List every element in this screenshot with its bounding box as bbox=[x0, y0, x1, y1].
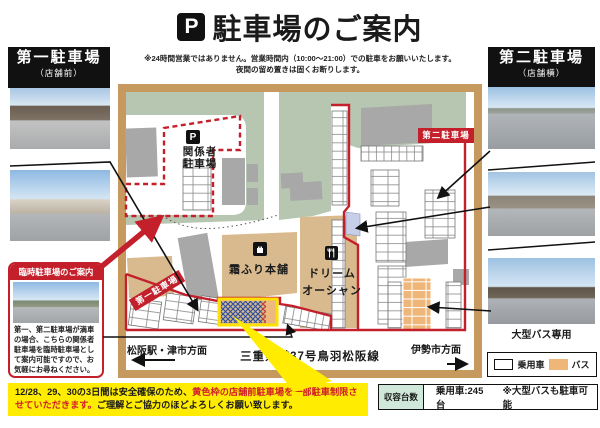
legend-box: 乗用車 バス bbox=[487, 352, 597, 377]
temporary-parking-text: 第一、第二駐車場が満車の場合、こちらの関係者駐車場を臨時駐車場として案内可能です… bbox=[10, 323, 102, 377]
notice-part1: 12/28、29、30の3日間は安全確保のため、 bbox=[15, 387, 192, 397]
photo-temporary-lot bbox=[13, 282, 99, 323]
store2-line1: ドリーム bbox=[296, 266, 368, 283]
bracket-line-right1 bbox=[488, 162, 595, 170]
parking-icon: P bbox=[177, 13, 205, 41]
staff-parking-line2: 駐車場 bbox=[172, 158, 228, 170]
lot1-header-sub: （店舗前） bbox=[8, 67, 110, 79]
legend-car-label: 乗用車 bbox=[517, 358, 544, 371]
direction-right-label: 伊勢市方面 bbox=[400, 341, 472, 356]
temporary-parking-header: 臨時駐車場のご案内 bbox=[10, 264, 102, 280]
lot2-header-sub: （店舗横） bbox=[488, 67, 595, 79]
lot2-map-label: 第二駐車場 bbox=[418, 128, 474, 143]
photo-lot1-storefront bbox=[10, 88, 110, 149]
lot1-header: 第一駐車場 （店舗前） bbox=[8, 47, 110, 88]
parking-guide-poster: P 駐車場のご案内 ※24時間営業ではありません。営業時間内（10:00～21:… bbox=[0, 0, 600, 428]
photo-bus-area bbox=[488, 258, 595, 324]
capacity-note: ※大型バスも駐車可能 bbox=[503, 383, 597, 411]
bus-parking-grid bbox=[403, 278, 431, 330]
lavender-building bbox=[346, 212, 360, 236]
lot2-header: 第二駐車場 （店舗横） bbox=[488, 47, 595, 88]
staff-parking-icon: P bbox=[186, 130, 200, 144]
page-title: 駐車場のご案内 bbox=[212, 6, 422, 48]
green-block-middle bbox=[279, 92, 331, 220]
legend-bus-label: バス bbox=[572, 358, 590, 371]
restriction-notice: 12/28、29、30の3日間は安全確保のため、黄色枠の店舗前駐車場を一部駐車制… bbox=[8, 383, 368, 416]
notice-part3: ご理解とご協力のほどよろしくお願い致します。 bbox=[97, 400, 298, 410]
photo-lot2-wide bbox=[488, 87, 595, 149]
capacity-label: 収容台数 bbox=[379, 385, 424, 409]
staff-parking-label: 関係者 駐車場 bbox=[172, 146, 228, 170]
road-name-label: 三重県道37号鳥羽松阪線 bbox=[230, 348, 390, 364]
lot2-header-title: 第二駐車場 bbox=[488, 50, 595, 67]
photo-lot1-side bbox=[10, 170, 110, 241]
restricted-parking-box bbox=[219, 299, 277, 325]
bus-caption: 大型バス専用 bbox=[488, 326, 595, 341]
store2-line2: オーシャン bbox=[296, 283, 368, 300]
store2-label: ドリーム オーシャン bbox=[296, 266, 368, 299]
title-row: P 駐車場のご案内 bbox=[0, 6, 600, 48]
bracket-line-right2 bbox=[488, 242, 595, 250]
store1-label: 霜ふり本舗 bbox=[214, 261, 304, 277]
staff-parking-line1: 関係者 bbox=[172, 146, 228, 158]
car-swatch bbox=[494, 359, 513, 370]
capacity-value: 乗用車:245台 bbox=[436, 383, 493, 411]
restaurant-icon bbox=[325, 246, 338, 260]
shop-icon bbox=[253, 242, 267, 256]
photo-lot2-cones bbox=[488, 172, 595, 236]
bus-swatch bbox=[549, 359, 568, 370]
temporary-parking-box: 臨時駐車場のご案内 第一、第二駐車場が満車の場合、こちらの関係者駐車場を臨時駐車… bbox=[8, 262, 104, 378]
direction-left-label: 松阪駅・津市方面 bbox=[127, 342, 207, 357]
lot1-header-title: 第一駐車場 bbox=[8, 50, 110, 67]
capacity-box: 収容台数 乗用車:245台 ※大型バスも駐車可能 bbox=[378, 384, 598, 410]
